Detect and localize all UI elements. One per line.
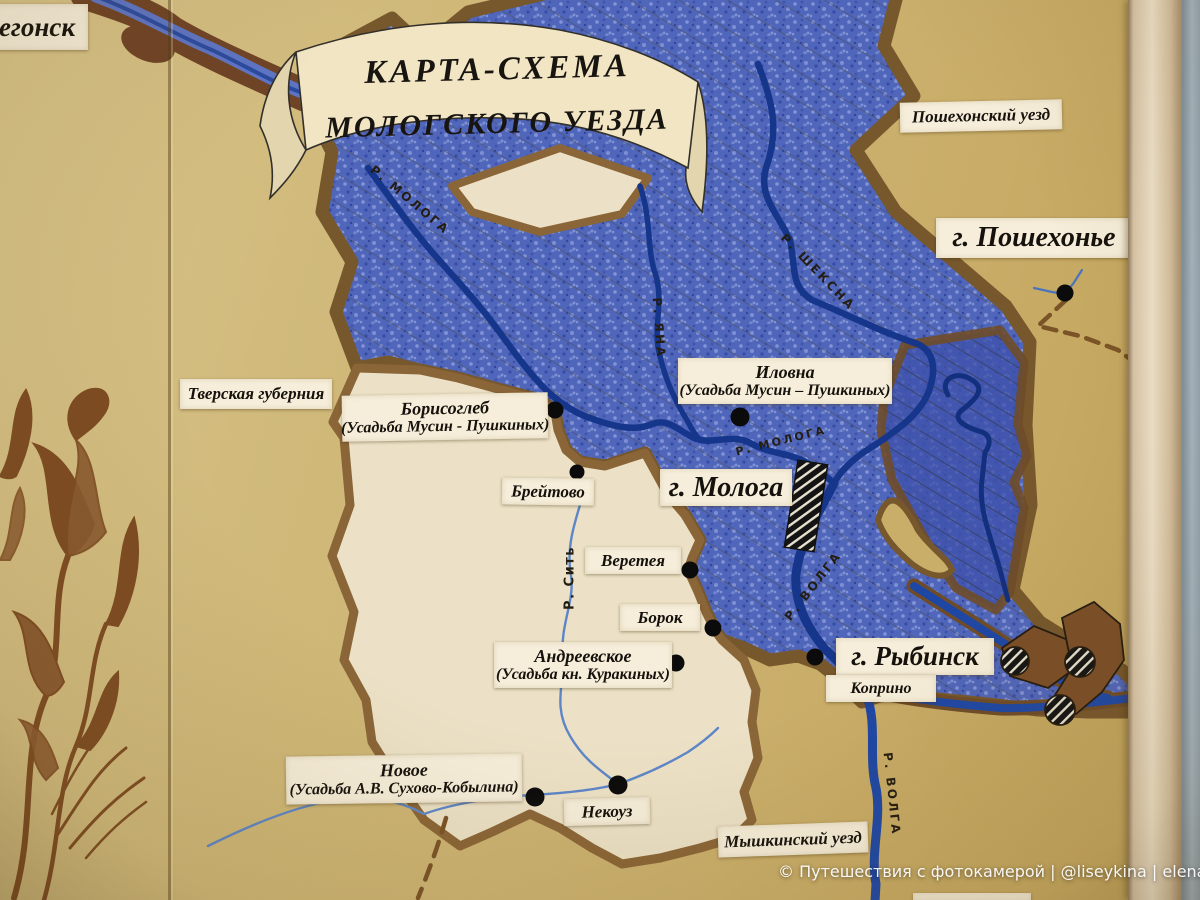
floral-ornament (0, 389, 146, 900)
dot-nekouz (609, 776, 628, 795)
dot-vereteya (682, 562, 699, 579)
photographer-watermark: © Путешествия с фотокамерой | @liseykina… (778, 862, 1200, 881)
settlement-estate: (Усадьба кн. Куракиных) (496, 666, 670, 684)
label-myshkinsky-uyezd: Мышкинский уезд (718, 821, 869, 857)
label-vereteya: Веретея (585, 547, 681, 574)
partial-label-sliver (913, 893, 1031, 900)
area-label: Тверская губерния (188, 384, 324, 403)
label-breytovo: Брейтово (502, 477, 594, 505)
label-tverskaya-guberniya: Тверская губерния (180, 379, 332, 409)
label-poshekhonsky-uyezd: Пошехонский уезд (900, 99, 1063, 132)
dot-novoe (526, 788, 545, 807)
settlement-name: Иловна (755, 362, 814, 382)
label-andreevskoe: Андреевское (Усадьба кн. Куракиных) (494, 642, 672, 688)
settlement-name: Борисоглеб (400, 397, 489, 419)
dot-breytovo (570, 465, 585, 480)
wall-seam-highlight (171, 0, 173, 900)
settlement-name: Коприно (851, 680, 912, 698)
city-label: г. Молога (669, 472, 783, 503)
settlement-name: Брейтово (511, 481, 585, 501)
door-edge (1182, 0, 1200, 900)
city-label: г. Пошехонье (952, 222, 1115, 253)
wall-map-photo: КАРТА-СХЕМА МОЛОГСКОГО УЕЗДА егонск Поше… (0, 0, 1200, 900)
door-trim-molding (1128, 0, 1182, 900)
city-label: г. Рыбинск (851, 641, 979, 671)
settlement-name: Новое (380, 760, 428, 781)
area-label: Пошехонский уезд (912, 105, 1051, 127)
label-city-mologa: г. Молога (660, 469, 792, 506)
dot-borok (705, 620, 722, 637)
settlement-estate: (Усадьба Мусин – Пушкиных) (679, 382, 890, 400)
label-ilovna: Иловна (Усадьба Мусин – Пушкиных) (678, 358, 892, 404)
settlement-name: Веретея (601, 551, 665, 570)
label-vesyegonsk-partial: егонск (0, 4, 88, 50)
label-novoe: Новое (Усадьба А.В. Сухово-Кобылина) (286, 753, 523, 804)
dot-rybinsk (807, 649, 824, 666)
map-title-line1: КАРТА-СХЕМА (364, 48, 630, 92)
area-label: Мышкинский уезд (724, 828, 862, 852)
label-city-poshekhonye: г. Пошехонье (936, 218, 1132, 258)
dot-poshekhonye (1057, 285, 1074, 302)
label-city-rybinsk: г. Рыбинск (836, 638, 994, 675)
river-label-sit: Р. Сить (563, 546, 578, 610)
settlement-name: Некоуз (581, 801, 632, 821)
settlement-name: Андреевское (534, 646, 631, 666)
dot-ilovna (731, 408, 750, 427)
label-nekouz: Некоуз (564, 797, 651, 826)
settlement-estate: (Усадьба Мусин - Пушкиных) (341, 416, 550, 438)
label-koprino: Коприно (826, 675, 936, 702)
label-borisogleb: Борисоглеб (Усадьба Мусин - Пушкиных) (342, 392, 549, 442)
label-borok: Борок (620, 604, 700, 631)
area-label: егонск (0, 12, 75, 42)
settlement-estate: (Усадьба А.В. Сухово-Кобылина) (289, 779, 518, 800)
settlement-name: Борок (638, 608, 683, 627)
